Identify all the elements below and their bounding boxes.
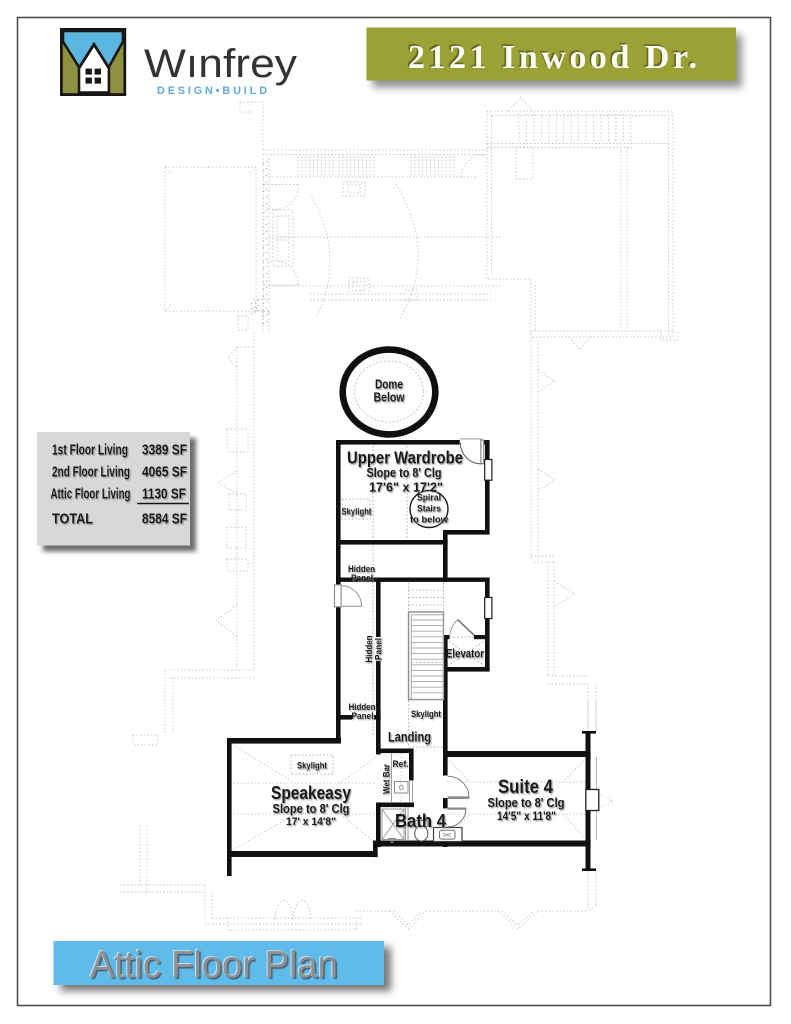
svg-text:Landing: Landing [388,730,431,745]
svg-text:Elevator: Elevator [446,647,484,661]
svg-text:Skylight: Skylight [342,507,372,517]
svg-text:Slope to 8' Clg: Slope to 8' Clg [273,801,350,816]
svg-text:8584 SF: 8584 SF [142,511,187,528]
svg-text:Slope to 8' Clg: Slope to 8' Clg [367,465,442,480]
svg-text:1130 SF: 1130 SF [142,486,186,503]
svg-text:Below: Below [374,391,405,405]
svg-text:2121 Inwood Dr.: 2121 Inwood Dr. [408,39,697,76]
svg-text:Panel: Panel [351,573,373,583]
svg-text:1st Floor Living: 1st Floor Living [52,442,128,459]
svg-text:4065 SF: 4065 SF [142,464,187,481]
svg-text:Wınfrey: Wınfrey [144,42,297,86]
svg-text:3389 SF: 3389 SF [142,442,187,459]
svg-text:Wet Bar: Wet Bar [381,764,391,794]
svg-text:DESIGN•BUILD: DESIGN•BUILD [157,85,267,97]
svg-text:Skylight: Skylight [411,709,441,719]
svg-text:Hidden: Hidden [364,635,374,662]
svg-text:2nd Floor Living: 2nd Floor Living [52,464,130,481]
svg-text:Spiral: Spiral [417,493,441,503]
svg-text:Dome: Dome [375,378,403,392]
svg-text:Slope to 8' Clg: Slope to 8' Clg [488,795,565,810]
svg-text:to below: to below [410,515,449,525]
svg-text:Panel: Panel [374,638,384,660]
svg-text:Ref.: Ref. [393,759,409,769]
svg-text:17' x 14'8": 17' x 14'8" [286,816,336,828]
svg-text:Stairs: Stairs [417,504,441,514]
svg-text:14'5" x 11'8": 14'5" x 11'8" [497,811,556,823]
svg-text:Attic Floor Plan: Attic Floor Plan [90,945,338,987]
svg-text:Attic Floor Living: Attic Floor Living [51,486,131,503]
svg-text:Bath 4: Bath 4 [395,811,446,831]
svg-text:Panel: Panel [352,711,374,721]
svg-text:Skylight: Skylight [297,761,327,771]
svg-text:TOTAL: TOTAL [52,511,93,528]
